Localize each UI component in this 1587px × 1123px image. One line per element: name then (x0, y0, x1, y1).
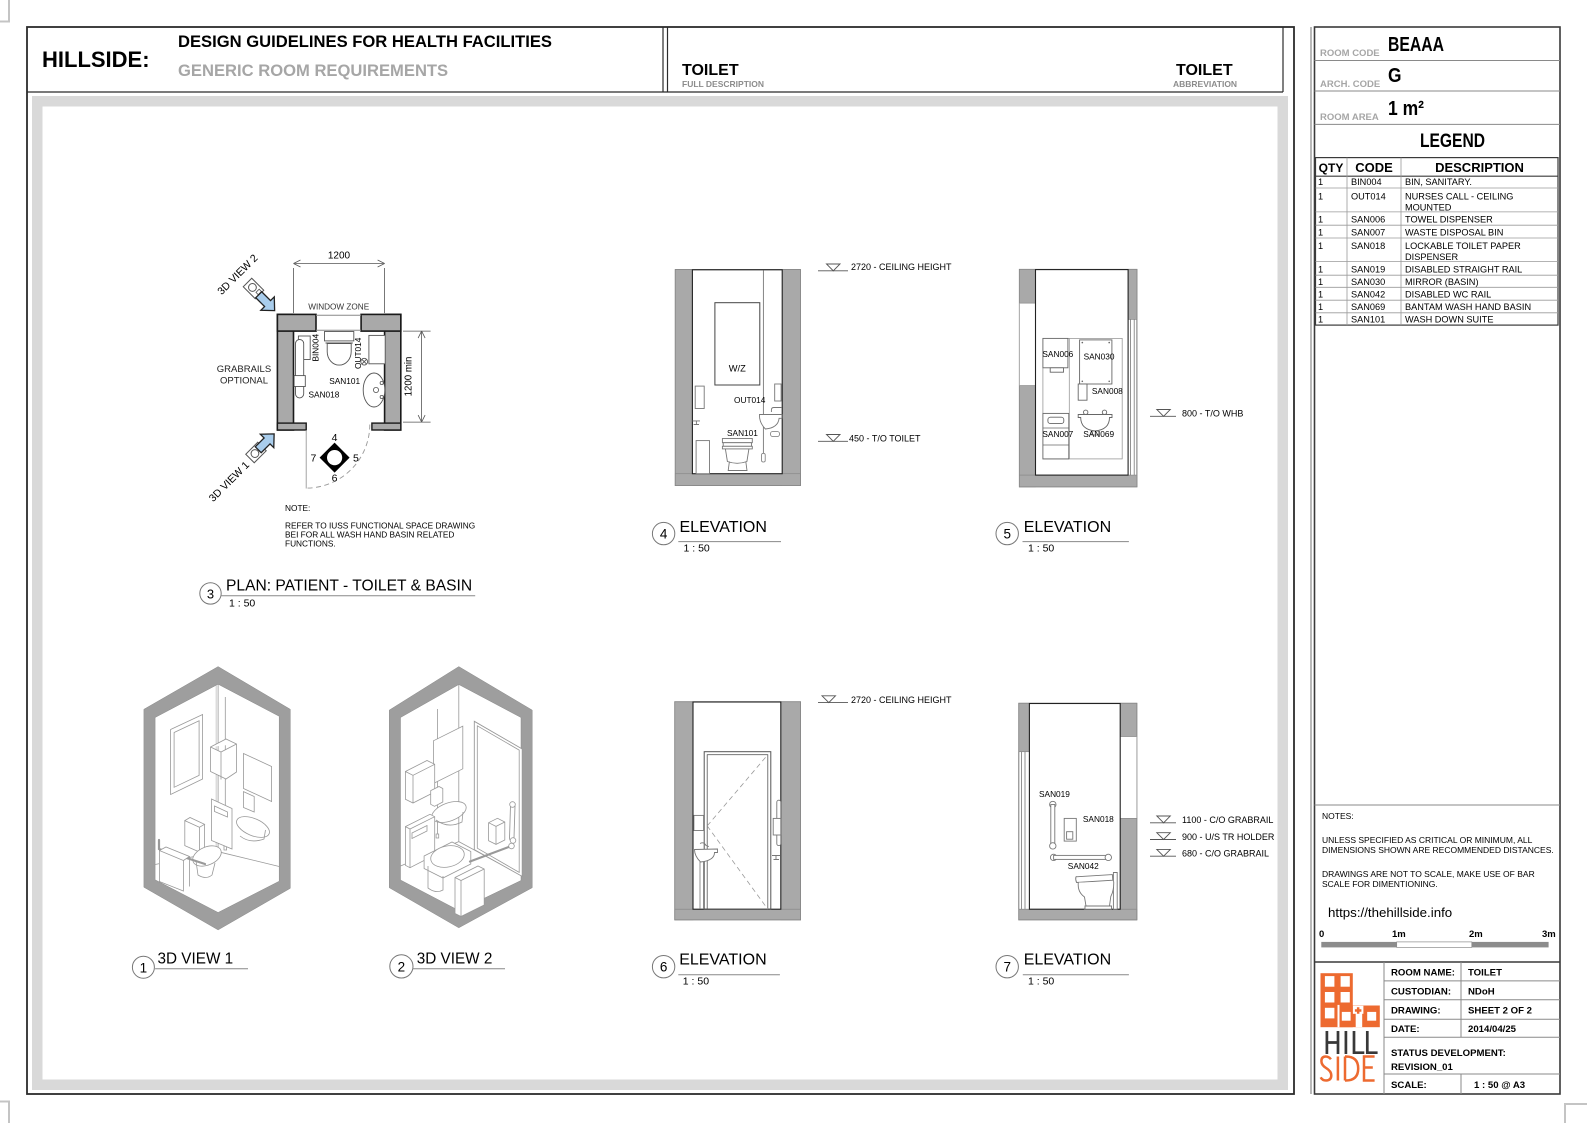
svg-text:2: 2 (398, 959, 406, 974)
svg-text:DISABLED WC RAIL: DISABLED WC RAIL (1405, 290, 1491, 300)
svg-text:SAN006: SAN006 (1042, 349, 1073, 359)
svg-text:NOTES:: NOTES: (1322, 811, 1354, 821)
svg-text:7: 7 (1003, 960, 1011, 975)
svg-text:5: 5 (353, 452, 359, 464)
svg-text:2m: 2m (1469, 929, 1483, 940)
svg-text:900 - U/S TR HOLDER: 900 - U/S TR HOLDER (1182, 832, 1275, 842)
svg-text:450 - T/O TOILET: 450 - T/O TOILET (849, 434, 921, 444)
svg-text:3D VIEW 1: 3D VIEW 1 (158, 951, 234, 968)
svg-text:ELEVATION: ELEVATION (1024, 519, 1111, 536)
svg-text:1 : 50: 1 : 50 (684, 543, 710, 555)
svg-text:SAN042: SAN042 (1351, 290, 1385, 300)
svg-text:1 m²: 1 m² (1388, 97, 1424, 120)
svg-text:SAN007: SAN007 (1351, 228, 1385, 238)
svg-text:1: 1 (1318, 290, 1323, 300)
svg-text:CODE: CODE (1355, 160, 1393, 175)
svg-text:DRAWINGS ARE NOT TO SCALE, MAK: DRAWINGS ARE NOT TO SCALE, MAKE USE OF B… (1322, 869, 1535, 879)
svg-text:NDoH: NDoH (1468, 987, 1495, 998)
svg-text:1 : 50: 1 : 50 (683, 976, 709, 988)
svg-text:MIRROR (BASIN): MIRROR (BASIN) (1405, 277, 1479, 287)
svg-text:7: 7 (310, 452, 316, 464)
svg-text:1 : 50 @ A3: 1 : 50 @ A3 (1474, 1080, 1525, 1091)
svg-text:2720 - CEILING HEIGHT: 2720 - CEILING HEIGHT (851, 695, 952, 705)
svg-text:NURSES CALL - CEILING: NURSES CALL - CEILING (1405, 192, 1513, 202)
svg-text:MOUNTED: MOUNTED (1405, 203, 1452, 213)
svg-text:TOILET: TOILET (1468, 968, 1502, 979)
svg-text:https://thehillside.info: https://thehillside.info (1328, 905, 1452, 920)
svg-text:ELEVATION: ELEVATION (1024, 952, 1111, 969)
svg-text:DIMENSIONS SHOWN ARE RECOMMEND: DIMENSIONS SHOWN ARE RECOMMENDED DISTANC… (1322, 845, 1554, 855)
svg-text:TOWEL DISPENSER: TOWEL DISPENSER (1405, 215, 1493, 225)
svg-text:BANTAM WASH HAND BASIN: BANTAM WASH HAND BASIN (1405, 302, 1531, 312)
svg-text:TOILET: TOILET (682, 62, 739, 79)
svg-text:ROOM NAME:: ROOM NAME: (1391, 968, 1455, 979)
svg-text:3D VIEW 2: 3D VIEW 2 (417, 951, 493, 968)
svg-text:SAN019: SAN019 (1039, 789, 1070, 799)
svg-text:SAN030: SAN030 (1351, 277, 1385, 287)
svg-text:1: 1 (1318, 265, 1323, 275)
svg-text:1: 1 (1318, 302, 1323, 312)
svg-text:5: 5 (1003, 527, 1011, 542)
svg-text:BIN004: BIN004 (1351, 177, 1382, 187)
svg-text:REVISION_01: REVISION_01 (1391, 1062, 1454, 1073)
svg-text:SAN008: SAN008 (1092, 386, 1123, 396)
svg-text:1: 1 (1318, 315, 1323, 325)
svg-text:1: 1 (1318, 228, 1323, 238)
svg-text:HILLSIDE:: HILLSIDE: (42, 47, 150, 72)
svg-text:3m: 3m (1542, 929, 1556, 940)
svg-text:2720 - CEILING HEIGHT: 2720 - CEILING HEIGHT (851, 262, 952, 272)
svg-text:FULL DESCRIPTION: FULL DESCRIPTION (682, 79, 764, 89)
svg-text:SAN006: SAN006 (1351, 215, 1385, 225)
svg-text:ABBREVIATION: ABBREVIATION (1173, 79, 1237, 89)
svg-text:TOILET: TOILET (1176, 62, 1233, 79)
svg-text:FUNCTIONS.: FUNCTIONS. (285, 539, 336, 549)
svg-text:DESCRIPTION: DESCRIPTION (1435, 160, 1524, 175)
svg-text:1 : 50: 1 : 50 (1028, 976, 1054, 988)
svg-text:DESIGN GUIDELINES FOR HEALTH F: DESIGN GUIDELINES FOR HEALTH FACILITIES (178, 32, 552, 51)
svg-text:1m: 1m (1392, 929, 1406, 940)
svg-text:1: 1 (1318, 177, 1323, 187)
svg-text:ROOM AREA: ROOM AREA (1320, 112, 1379, 123)
svg-text:SCALE FOR DIMENTIONING.: SCALE FOR DIMENTIONING. (1322, 879, 1438, 889)
svg-text:1200: 1200 (328, 251, 351, 262)
svg-text:1: 1 (140, 960, 148, 975)
svg-text:SAN018: SAN018 (1351, 241, 1385, 251)
svg-text:1: 1 (1318, 192, 1323, 202)
svg-text:STATUS DEVELOPMENT:: STATUS DEVELOPMENT: (1391, 1048, 1506, 1059)
svg-text:WINDOW ZONE: WINDOW ZONE (308, 303, 369, 312)
svg-text:SAN069: SAN069 (1083, 429, 1114, 439)
svg-text:4: 4 (332, 432, 338, 444)
svg-text:WASH DOWN SUITE: WASH DOWN SUITE (1405, 315, 1493, 325)
svg-text:1: 1 (1318, 215, 1323, 225)
svg-text:OPTIONAL: OPTIONAL (220, 376, 268, 387)
svg-text:ARCH. CODE: ARCH. CODE (1320, 79, 1380, 90)
svg-text:SAN030: SAN030 (1084, 352, 1115, 362)
svg-text:2014/04/25: 2014/04/25 (1468, 1024, 1517, 1035)
svg-text:4: 4 (660, 527, 668, 542)
svg-text:1200 min: 1200 min (404, 357, 415, 397)
svg-text:SAN042: SAN042 (1068, 861, 1099, 871)
svg-text:680 - C/O GRABRAIL: 680 - C/O GRABRAIL (1182, 849, 1269, 859)
svg-text:UNLESS SPECIFIED AS CRITICAL O: UNLESS SPECIFIED AS CRITICAL OR MINIMUM,… (1322, 835, 1533, 845)
svg-text:SAN018: SAN018 (309, 390, 340, 400)
svg-text:SAN069: SAN069 (1351, 302, 1385, 312)
svg-text:1 : 50: 1 : 50 (229, 598, 255, 610)
svg-text:DISABLED STRAIGHT RAIL: DISABLED STRAIGHT RAIL (1405, 265, 1522, 275)
svg-text:QTY: QTY (1319, 161, 1344, 175)
svg-text:DATE:: DATE: (1391, 1024, 1420, 1035)
svg-text:BEAAA: BEAAA (1388, 33, 1444, 56)
svg-text:CUSTODIAN:: CUSTODIAN: (1391, 987, 1451, 998)
svg-text:DRAWING:: DRAWING: (1391, 1006, 1441, 1017)
svg-text:1: 1 (1318, 241, 1323, 251)
svg-text:NOTE:: NOTE: (285, 503, 310, 513)
svg-text:SAN007: SAN007 (1042, 429, 1073, 439)
svg-text:G: G (1388, 64, 1402, 87)
svg-text:DISPENSER: DISPENSER (1405, 252, 1458, 262)
svg-text:OUT014: OUT014 (1351, 192, 1386, 202)
svg-text:WASTE DISPOSAL BIN: WASTE DISPOSAL BIN (1405, 228, 1503, 238)
svg-text:GRABRAILS: GRABRAILS (217, 364, 271, 375)
svg-text:LEGEND: LEGEND (1420, 130, 1485, 152)
svg-text:PLAN: PATIENT - TOILET & BASIN: PLAN: PATIENT - TOILET & BASIN (226, 578, 472, 595)
svg-text:SAN101: SAN101 (727, 428, 758, 438)
svg-text:SAN019: SAN019 (1351, 265, 1385, 275)
svg-text:6: 6 (332, 472, 338, 484)
svg-text:SAN101: SAN101 (1351, 315, 1385, 325)
svg-text:6: 6 (660, 960, 668, 975)
svg-text:3: 3 (207, 586, 214, 601)
svg-text:SHEET 2 OF 2: SHEET 2 OF 2 (1468, 1006, 1532, 1017)
svg-text:SAN018: SAN018 (1083, 814, 1114, 824)
svg-text:ELEVATION: ELEVATION (679, 952, 766, 969)
svg-text:SAN101: SAN101 (329, 376, 360, 386)
svg-text:LOCKABLE TOILET PAPER: LOCKABLE TOILET PAPER (1405, 241, 1521, 251)
svg-text:1100 - C/O GRABRAIL: 1100 - C/O GRABRAIL (1182, 815, 1273, 825)
svg-text:GENERIC ROOM REQUIREMENTS: GENERIC ROOM REQUIREMENTS (178, 61, 448, 80)
svg-text:OUT014: OUT014 (734, 395, 766, 405)
svg-text:ELEVATION: ELEVATION (680, 519, 767, 536)
svg-text:800 - T/O WHB: 800 - T/O WHB (1182, 409, 1243, 419)
svg-text:1: 1 (1318, 277, 1323, 287)
svg-text:BIN, SANITARY.: BIN, SANITARY. (1405, 177, 1472, 187)
svg-text:BIN004: BIN004 (311, 333, 321, 361)
svg-text:W/Z: W/Z (729, 364, 746, 374)
svg-text:ROOM CODE: ROOM CODE (1320, 48, 1380, 59)
svg-text:0: 0 (1319, 929, 1324, 940)
svg-text:1 : 50: 1 : 50 (1028, 543, 1054, 555)
svg-text:SCALE:: SCALE: (1391, 1080, 1427, 1091)
